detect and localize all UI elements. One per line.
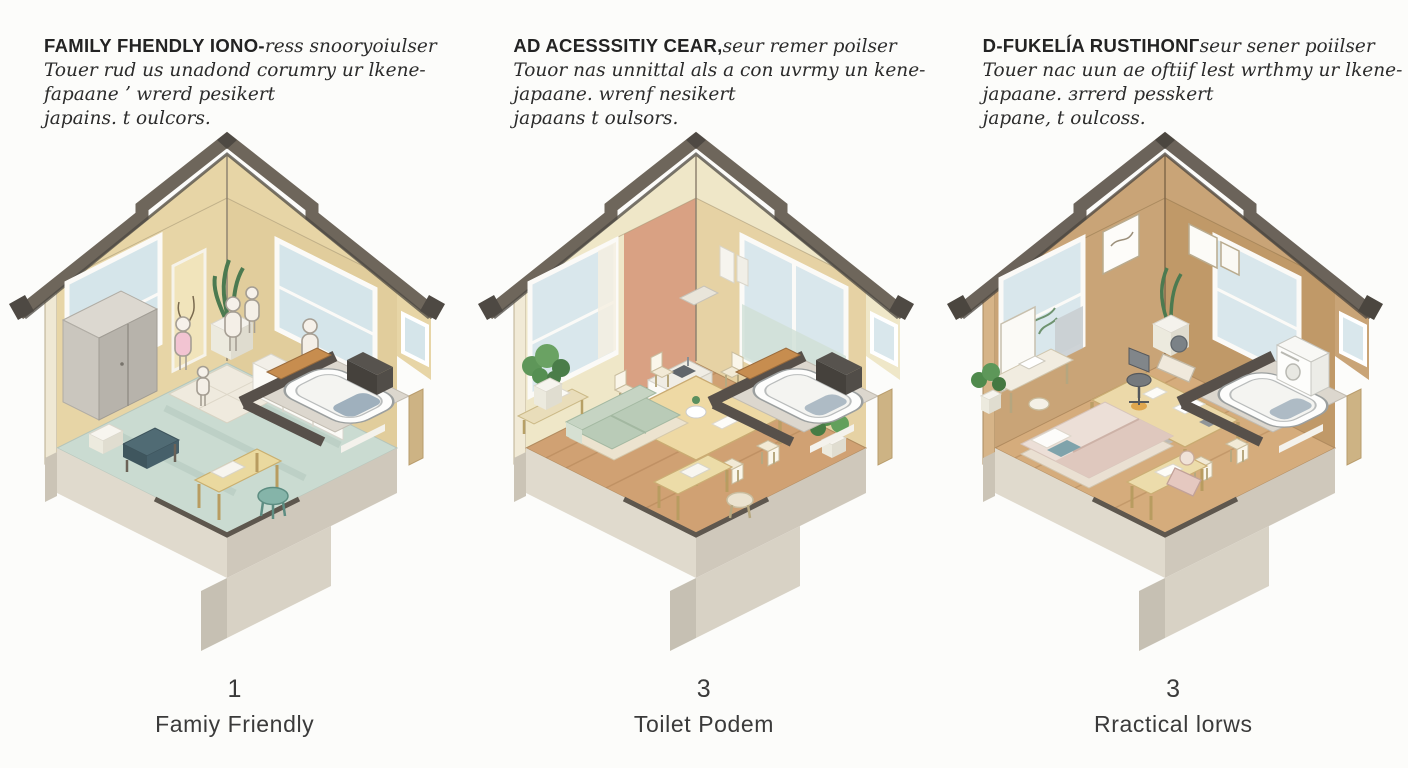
heading-tail-text: ress snooryoiulser <box>265 36 437 57</box>
isometric-house-illustration-3 <box>943 128 1403 673</box>
heading-tail-text: seur sener poiilser <box>1200 36 1375 57</box>
panel-number: 3 <box>469 675 938 704</box>
heading-line-2: Touer rud us unadond corumry ur lkene- <box>44 59 455 83</box>
panel-1-heading: FAMILY FHENDLY IONO-ress snooryoiulser T… <box>0 0 469 128</box>
panel-2-footer: 3 Toilet Podem <box>469 675 938 738</box>
panel-1-footer: 1 Famiy Friendly <box>0 675 469 738</box>
panel-3-footer: 3 Rractical lorws <box>939 675 1408 738</box>
panel-number: 1 <box>0 675 469 704</box>
panel-rractical-lorws: D-FUKELĺA RUSTIHONГseur sener poiilser T… <box>939 0 1408 768</box>
isometric-house-illustration-2 <box>474 128 934 673</box>
heading-bold-text: D-FUKELĺA RUSTIHONГ <box>983 35 1200 56</box>
isometric-house-illustration-1 <box>5 128 465 673</box>
heading-line-3: japaane. зrrerd pesskert <box>983 83 1394 107</box>
round-stool <box>258 488 288 520</box>
panel-3-heading: D-FUKELĺA RUSTIHONГseur sener poiilser T… <box>939 0 1408 128</box>
heading-tail-text: seur remer poilser <box>723 36 897 57</box>
panel-caption: Famiy Friendly <box>0 711 469 738</box>
panel-number: 3 <box>939 675 1408 704</box>
heading-bold-text: AD ACESSSITIY CEAR, <box>513 35 722 56</box>
heading-line-2: Touor nas unnittal als a con uvrmy un ke… <box>513 59 924 83</box>
panel-2-heading: AD ACESSSITIY CEAR,seur remer poilser To… <box>469 0 938 128</box>
panel-toilet-podem: AD ACESSSITIY CEAR,seur remer poilser To… <box>469 0 938 768</box>
panel-family-friendly: FAMILY FHENDLY IONO-ress snooryoiulser T… <box>0 0 469 768</box>
heading-line-3: fapaane ʼ wrerd pesikert <box>44 83 455 107</box>
heading-line-3: japaane. wrenf nesikert <box>513 83 924 107</box>
heading-line-2: Touer nac uun ae oftiif lest wrthmy ur l… <box>983 59 1394 83</box>
triptych-floorplan-page: FAMILY FHENDLY IONO-ress snooryoiulser T… <box>0 0 1408 768</box>
heading-bold-text: FAMILY FHENDLY IONO- <box>44 35 265 56</box>
panel-caption: Toilet Podem <box>469 711 938 738</box>
panel-caption: Rractical lorws <box>939 711 1408 738</box>
